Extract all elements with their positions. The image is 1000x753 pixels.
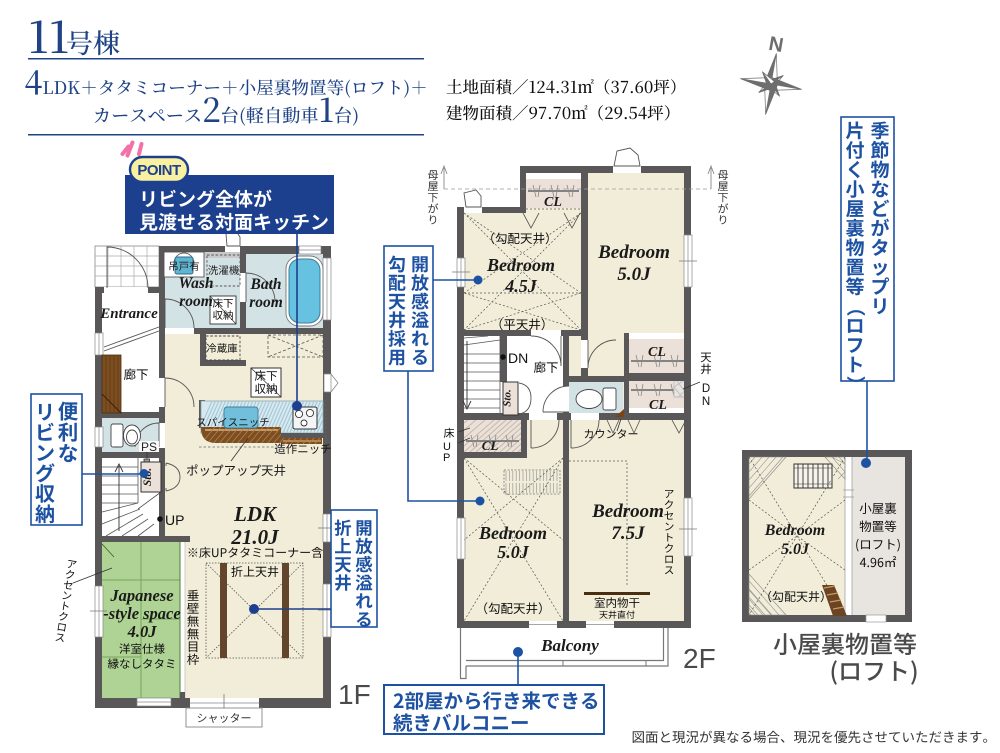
svg-text:1F: 1F <box>338 679 371 710</box>
svg-text:Bedroom: Bedroom <box>597 242 670 263</box>
svg-text:5.0J: 5.0J <box>781 541 810 558</box>
svg-text:-style space: -style space <box>103 604 180 623</box>
svg-text:Bath: Bath <box>249 276 281 293</box>
svg-text:7.5J: 7.5J <box>611 523 645 544</box>
svg-text:Bedroom: Bedroom <box>478 523 547 543</box>
svg-text:21.0J: 21.0J <box>230 525 280 549</box>
svg-text:UP: UP <box>165 512 184 528</box>
svg-text:P: P <box>443 452 450 464</box>
svg-text:DN: DN <box>508 350 528 366</box>
svg-text:5.0J: 5.0J <box>497 542 530 562</box>
svg-text:CL: CL <box>648 345 666 360</box>
svg-text:Sto.: Sto. <box>502 389 514 406</box>
svg-text:5.0J: 5.0J <box>617 264 651 285</box>
svg-text:Bedroom: Bedroom <box>764 522 825 539</box>
svg-text:CL: CL <box>544 195 562 210</box>
svg-text:Bedroom: Bedroom <box>486 255 555 275</box>
svg-text:4.0J: 4.0J <box>127 622 158 641</box>
svg-text:Entrance: Entrance <box>99 306 158 322</box>
svg-text:N: N <box>702 396 710 408</box>
svg-text:room: room <box>249 294 283 311</box>
svg-text:CL: CL <box>482 438 499 453</box>
svg-text:Bedroom: Bedroom <box>591 501 664 522</box>
svg-text:4.5J: 4.5J <box>504 276 538 296</box>
svg-text:room: room <box>179 293 213 310</box>
svg-text:Japanese: Japanese <box>109 586 173 605</box>
svg-text:PS: PS <box>141 440 157 454</box>
svg-text:POINT: POINT <box>137 162 181 179</box>
svg-text:LDK: LDK <box>233 502 278 526</box>
svg-text:Balcony: Balcony <box>540 636 599 655</box>
svg-text:Wash: Wash <box>178 275 213 292</box>
svg-text:2F: 2F <box>683 643 716 674</box>
svg-text:D: D <box>702 383 710 395</box>
svg-text:CL: CL <box>649 398 667 413</box>
